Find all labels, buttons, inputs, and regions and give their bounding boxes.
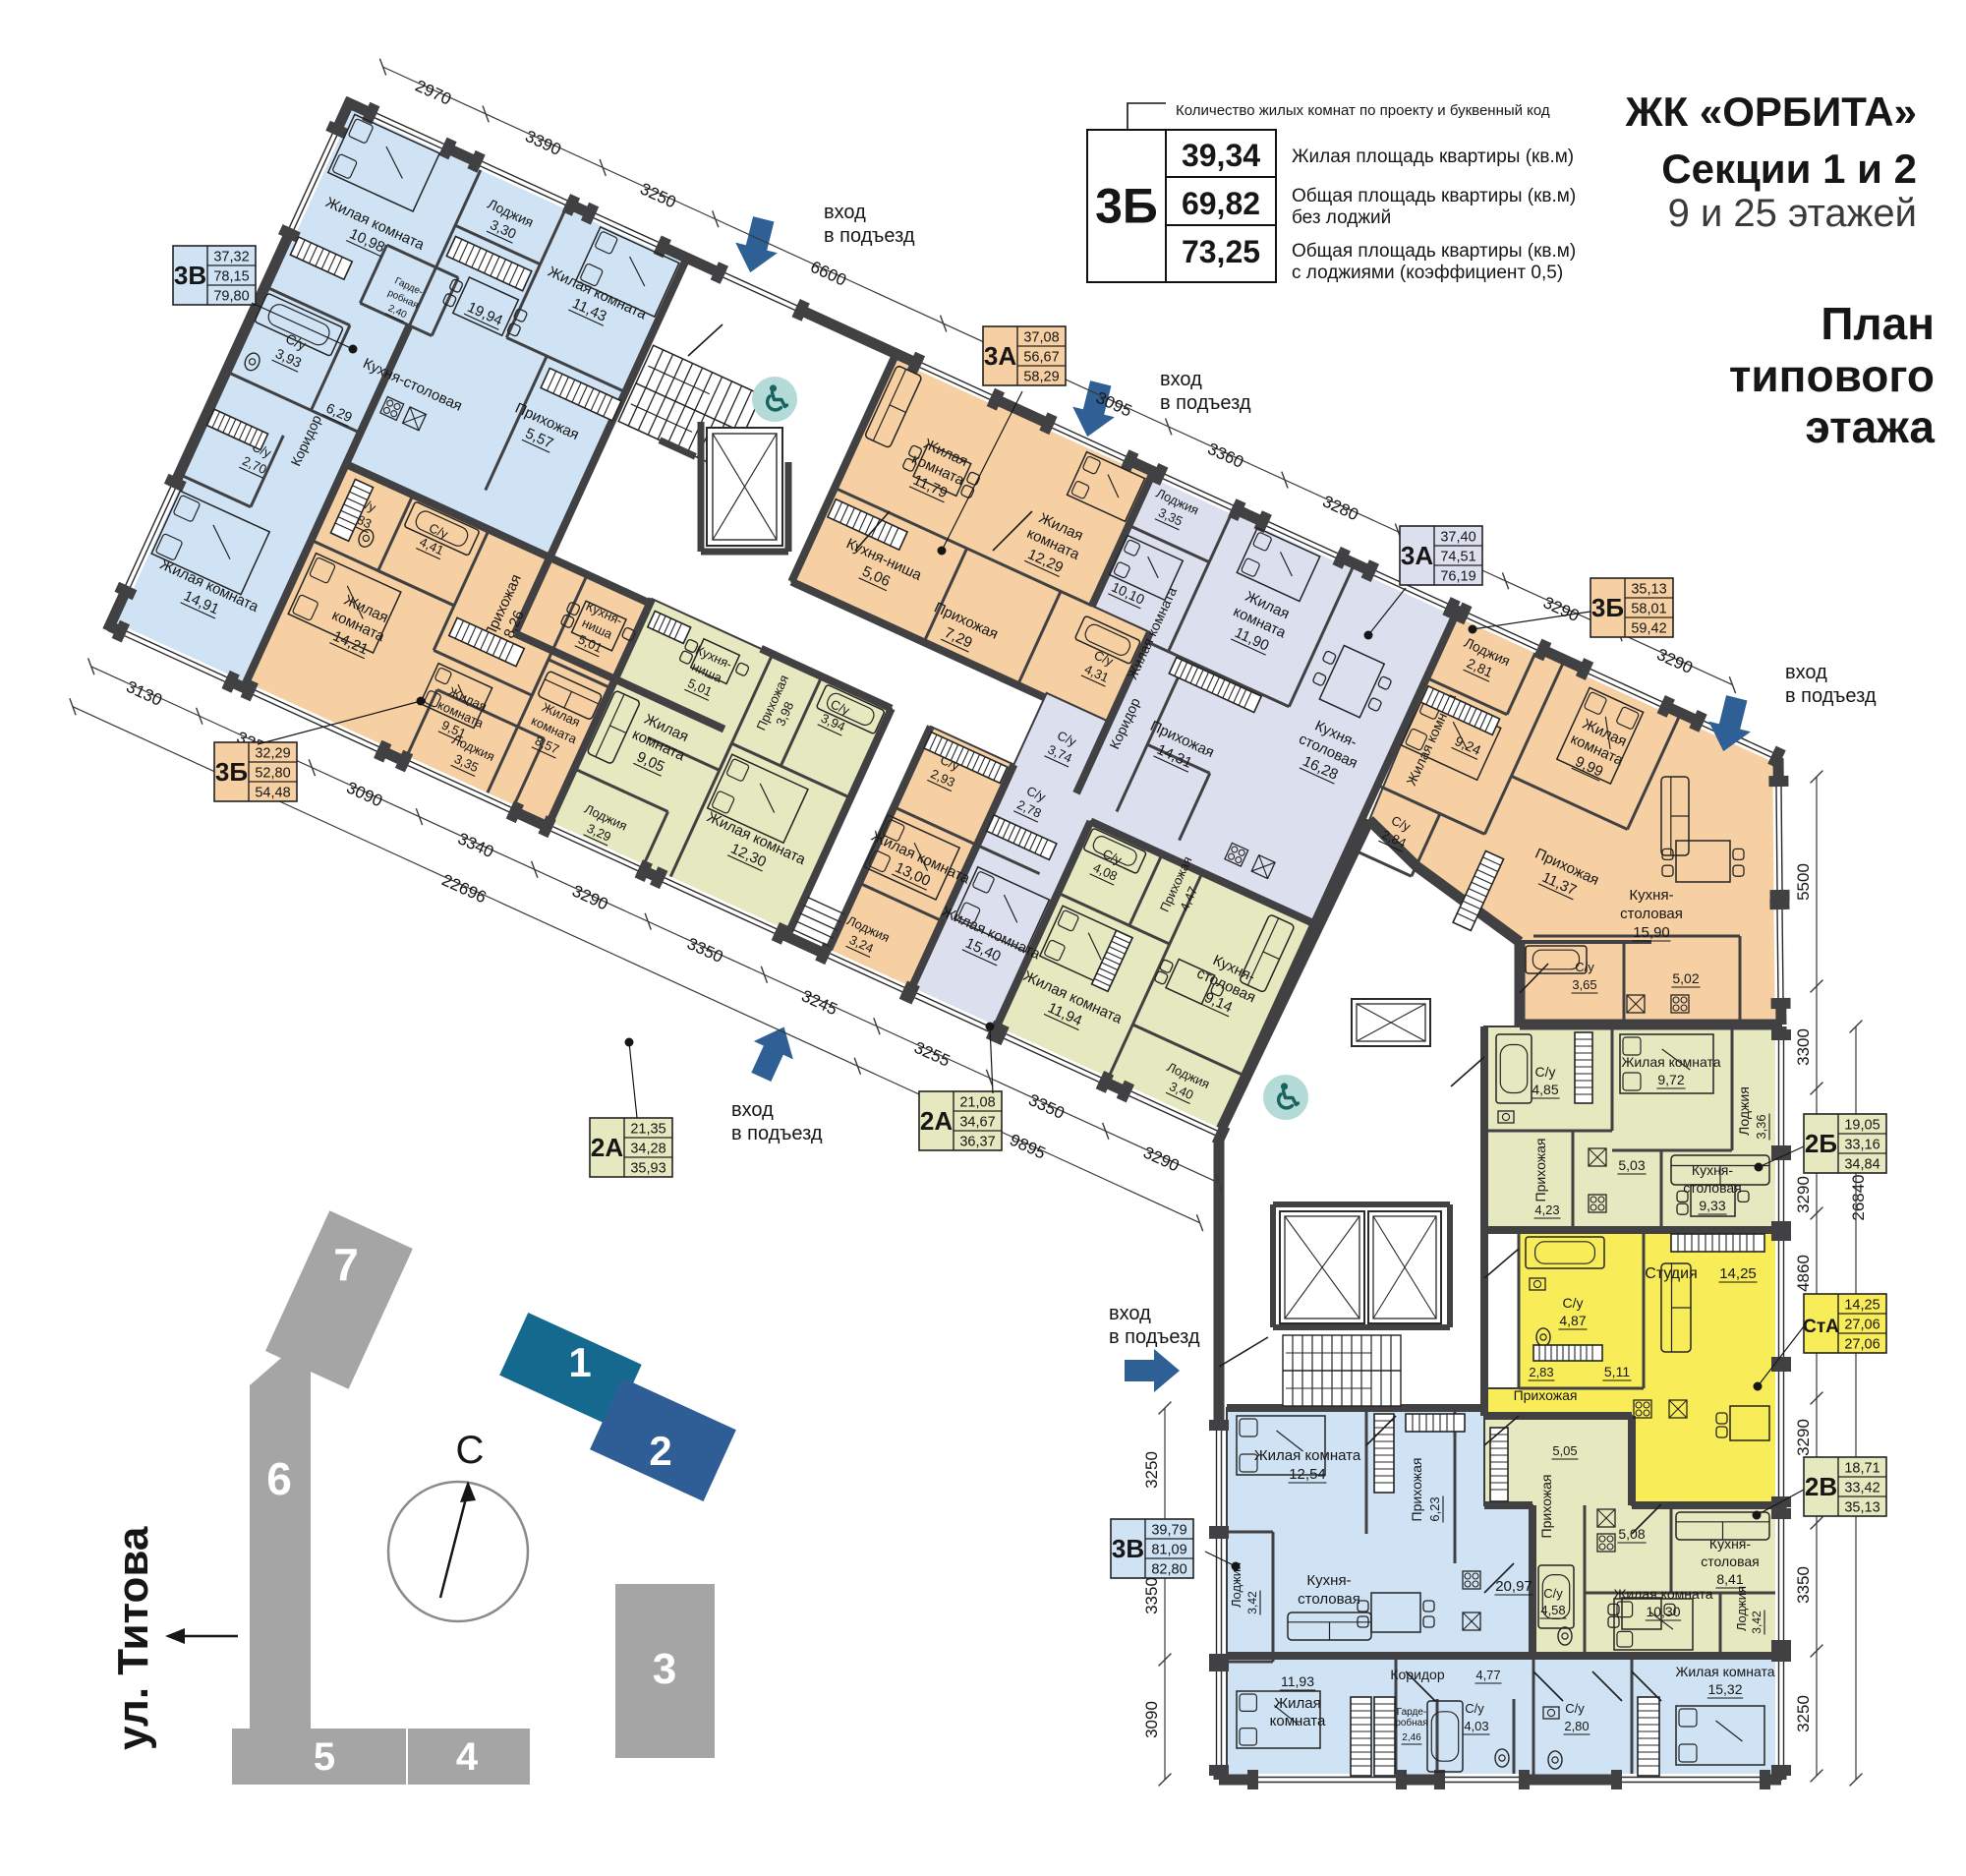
svg-text:Жилая: Жилая [1274, 1695, 1320, 1712]
svg-text:2В: 2В [1805, 1472, 1837, 1501]
svg-text:в подъезд: в подъезд [1160, 392, 1251, 414]
svg-text:С: С [456, 1429, 485, 1472]
svg-text:Коридор: Коридор [1390, 1667, 1445, 1682]
svg-text:35,13: 35,13 [1844, 1500, 1879, 1516]
svg-text:27,06: 27,06 [1844, 1318, 1879, 1333]
svg-text:27,06: 27,06 [1844, 1337, 1879, 1353]
svg-text:59,42: 59,42 [1631, 621, 1666, 637]
svg-text:3,42: 3,42 [1750, 1611, 1764, 1634]
svg-text:14,25: 14,25 [1719, 1265, 1757, 1282]
svg-text:82,80: 82,80 [1151, 1562, 1186, 1578]
svg-text:5: 5 [314, 1735, 335, 1779]
svg-text:8,41: 8,41 [1716, 1571, 1743, 1587]
svg-text:79,80: 79,80 [213, 289, 249, 305]
svg-text:36,37: 36,37 [959, 1135, 995, 1150]
svg-text:3Б: 3Б [1095, 179, 1158, 234]
svg-text:Лоджия: Лоджия [1734, 1586, 1749, 1631]
svg-text:2,80: 2,80 [1564, 1719, 1589, 1733]
svg-text:Прихожая: Прихожая [1514, 1387, 1578, 1403]
svg-text:3300: 3300 [1794, 1028, 1813, 1066]
svg-text:столовая: столовая [1683, 1180, 1742, 1196]
svg-text:С/у: С/у [1565, 1701, 1585, 1716]
svg-text:Кухня-: Кухня- [1692, 1162, 1733, 1178]
svg-text:вход: вход [824, 202, 866, 223]
svg-text:3290: 3290 [1794, 1176, 1813, 1213]
svg-text:3,42: 3,42 [1245, 1591, 1259, 1614]
svg-text:34,28: 34,28 [630, 1142, 665, 1157]
svg-text:37,40: 37,40 [1440, 530, 1475, 546]
svg-text:3Б: 3Б [1591, 593, 1624, 622]
svg-text:4,23: 4,23 [1534, 1202, 1559, 1217]
svg-text:58,29: 58,29 [1023, 370, 1059, 385]
svg-text:11,93: 11,93 [1281, 1673, 1314, 1689]
svg-text:34,67: 34,67 [959, 1115, 995, 1131]
svg-text:С/у: С/у [1575, 960, 1594, 974]
svg-text:33,16: 33,16 [1844, 1138, 1879, 1153]
svg-text:69,82: 69,82 [1182, 186, 1260, 221]
svg-text:3250: 3250 [1142, 1451, 1161, 1489]
svg-text:Жилая комната: Жилая комната [1254, 1447, 1361, 1464]
svg-text:столовая: столовая [1701, 1554, 1760, 1569]
svg-text:9 и 25 этажей: 9 и 25 этажей [1668, 192, 1917, 235]
svg-text:Гарде-: Гарде- [1397, 1707, 1426, 1718]
svg-text:3А: 3А [1401, 541, 1433, 570]
svg-text:робная: робная [1395, 1717, 1427, 1729]
svg-text:4,77: 4,77 [1475, 1668, 1500, 1682]
svg-text:78,15: 78,15 [213, 269, 249, 285]
svg-text:56,67: 56,67 [1023, 350, 1059, 366]
svg-text:58,01: 58,01 [1631, 602, 1666, 617]
svg-text:3350: 3350 [1794, 1566, 1813, 1604]
svg-text:3В: 3В [174, 261, 206, 290]
svg-text:33,42: 33,42 [1844, 1481, 1879, 1496]
svg-text:6: 6 [266, 1453, 292, 1504]
svg-text:3,65: 3,65 [1572, 977, 1596, 992]
svg-text:вход: вход [1785, 662, 1827, 683]
svg-text:15,90: 15,90 [1633, 924, 1670, 941]
svg-text:Общая площадь квартиры (кв.м): Общая площадь квартиры (кв.м) [1292, 186, 1576, 206]
svg-text:типового: типового [1729, 350, 1935, 401]
svg-text:План: План [1821, 298, 1935, 349]
svg-text:3: 3 [653, 1645, 676, 1693]
svg-text:ЖК «ОРБИТА»: ЖК «ОРБИТА» [1625, 88, 1917, 135]
svg-text:ул. Титова: ул. Титова [109, 1526, 157, 1750]
svg-text:4,85: 4,85 [1532, 1082, 1558, 1097]
svg-text:19,05: 19,05 [1844, 1118, 1879, 1134]
svg-text:20,97: 20,97 [1495, 1578, 1532, 1595]
svg-text:4: 4 [456, 1735, 479, 1779]
svg-text:6,23: 6,23 [1427, 1496, 1442, 1521]
svg-text:52,80: 52,80 [255, 766, 290, 782]
svg-text:5500: 5500 [1794, 863, 1813, 901]
svg-text:в подъезд: в подъезд [1785, 685, 1877, 707]
svg-text:39,34: 39,34 [1182, 138, 1260, 173]
svg-text:35,13: 35,13 [1631, 582, 1666, 598]
svg-text:столовая: столовая [1620, 906, 1683, 922]
svg-text:2,46: 2,46 [1402, 1732, 1421, 1743]
svg-text:Лоджия: Лоджия [1736, 1086, 1752, 1136]
svg-text:С/у: С/у [1543, 1586, 1563, 1601]
svg-text:2Б: 2Б [1805, 1129, 1837, 1158]
svg-text:18,71: 18,71 [1844, 1461, 1879, 1477]
svg-text:81,09: 81,09 [1151, 1543, 1186, 1558]
svg-text:Жилая площадь квартиры (кв.м): Жилая площадь квартиры (кв.м) [1292, 147, 1574, 167]
svg-text:14,25: 14,25 [1844, 1298, 1879, 1314]
svg-text:37,08: 37,08 [1023, 330, 1059, 346]
svg-text:5,11: 5,11 [1604, 1364, 1630, 1379]
svg-text:21,08: 21,08 [959, 1095, 995, 1111]
svg-text:3В: 3В [1112, 1534, 1144, 1563]
svg-text:Кухня-: Кухня- [1629, 887, 1673, 904]
svg-text:комната: комната [1270, 1713, 1326, 1729]
svg-text:7: 7 [333, 1239, 359, 1290]
svg-text:С/у: С/у [1563, 1295, 1584, 1311]
svg-text:2А: 2А [920, 1106, 953, 1136]
svg-text:3290: 3290 [1794, 1419, 1813, 1456]
svg-text:21,35: 21,35 [630, 1122, 665, 1138]
svg-text:37,32: 37,32 [213, 250, 249, 265]
svg-text:4,03: 4,03 [1464, 1719, 1488, 1733]
svg-text:3Б: 3Б [215, 757, 248, 787]
svg-text:столовая: столовая [1298, 1591, 1360, 1608]
svg-text:вход: вход [1160, 369, 1202, 390]
svg-text:Кухня-: Кухня- [1709, 1536, 1751, 1552]
svg-text:Секции 1 и 2: Секции 1 и 2 [1661, 146, 1917, 192]
svg-text:без лоджий: без лоджий [1292, 207, 1391, 228]
svg-text:3350: 3350 [1142, 1577, 1161, 1614]
svg-text:2А: 2А [591, 1133, 623, 1162]
svg-text:34,84: 34,84 [1844, 1157, 1879, 1173]
svg-text:3,36: 3,36 [1754, 1114, 1768, 1139]
svg-text:32,29: 32,29 [255, 746, 290, 762]
svg-text:С/у: С/у [1465, 1701, 1484, 1716]
svg-text:в подъезд: в подъезд [1109, 1326, 1200, 1348]
svg-text:СтА: СтА [1803, 1317, 1839, 1337]
svg-text:4,87: 4,87 [1559, 1313, 1586, 1328]
svg-text:3250: 3250 [1794, 1695, 1813, 1732]
svg-text:с лоджиями (коэффициент 0,5): с лоджиями (коэффициент 0,5) [1292, 263, 1563, 283]
svg-text:вход: вход [1109, 1303, 1151, 1324]
svg-text:5,05: 5,05 [1552, 1443, 1577, 1458]
svg-text:1: 1 [568, 1339, 591, 1385]
svg-text:35,93: 35,93 [630, 1161, 665, 1177]
svg-text:3090: 3090 [1142, 1701, 1161, 1738]
svg-text:39,79: 39,79 [1151, 1523, 1186, 1539]
svg-text:4860: 4860 [1794, 1255, 1813, 1292]
svg-text:в подъезд: в подъезд [824, 225, 915, 247]
svg-text:73,25: 73,25 [1182, 234, 1260, 269]
svg-text:Прихожая: Прихожая [1538, 1475, 1554, 1539]
svg-text:2,83: 2,83 [1529, 1365, 1553, 1379]
svg-text:Прихожая: Прихожая [1532, 1139, 1548, 1202]
svg-text:Прихожая: Прихожая [1409, 1458, 1424, 1522]
svg-text:С/у: С/у [1535, 1064, 1556, 1080]
svg-text:Общая площадь квартиры (кв.м): Общая площадь квартиры (кв.м) [1292, 241, 1576, 262]
svg-text:Кухня-: Кухня- [1306, 1572, 1351, 1589]
svg-text:76,19: 76,19 [1440, 569, 1475, 585]
svg-text:26840: 26840 [1849, 1174, 1868, 1220]
svg-text:5,02: 5,02 [1672, 970, 1699, 986]
svg-text:4,58: 4,58 [1540, 1603, 1565, 1617]
svg-text:вход: вход [731, 1099, 774, 1121]
svg-text:этажа: этажа [1805, 401, 1935, 452]
svg-text:5,03: 5,03 [1618, 1157, 1645, 1173]
svg-text:15,32: 15,32 [1707, 1681, 1742, 1697]
svg-text:Количество жилых комнат по про: Количество жилых комнат по проекту и бук… [1176, 102, 1550, 119]
svg-text:9,33: 9,33 [1699, 1198, 1725, 1213]
svg-text:2: 2 [649, 1428, 671, 1474]
svg-text:в подъезд: в подъезд [731, 1123, 823, 1144]
svg-text:54,48: 54,48 [255, 786, 290, 801]
svg-text:3А: 3А [984, 341, 1016, 371]
svg-text:Жилая комната: Жилая комната [1675, 1664, 1774, 1679]
svg-text:74,51: 74,51 [1440, 550, 1475, 565]
svg-text:9,72: 9,72 [1657, 1072, 1684, 1087]
